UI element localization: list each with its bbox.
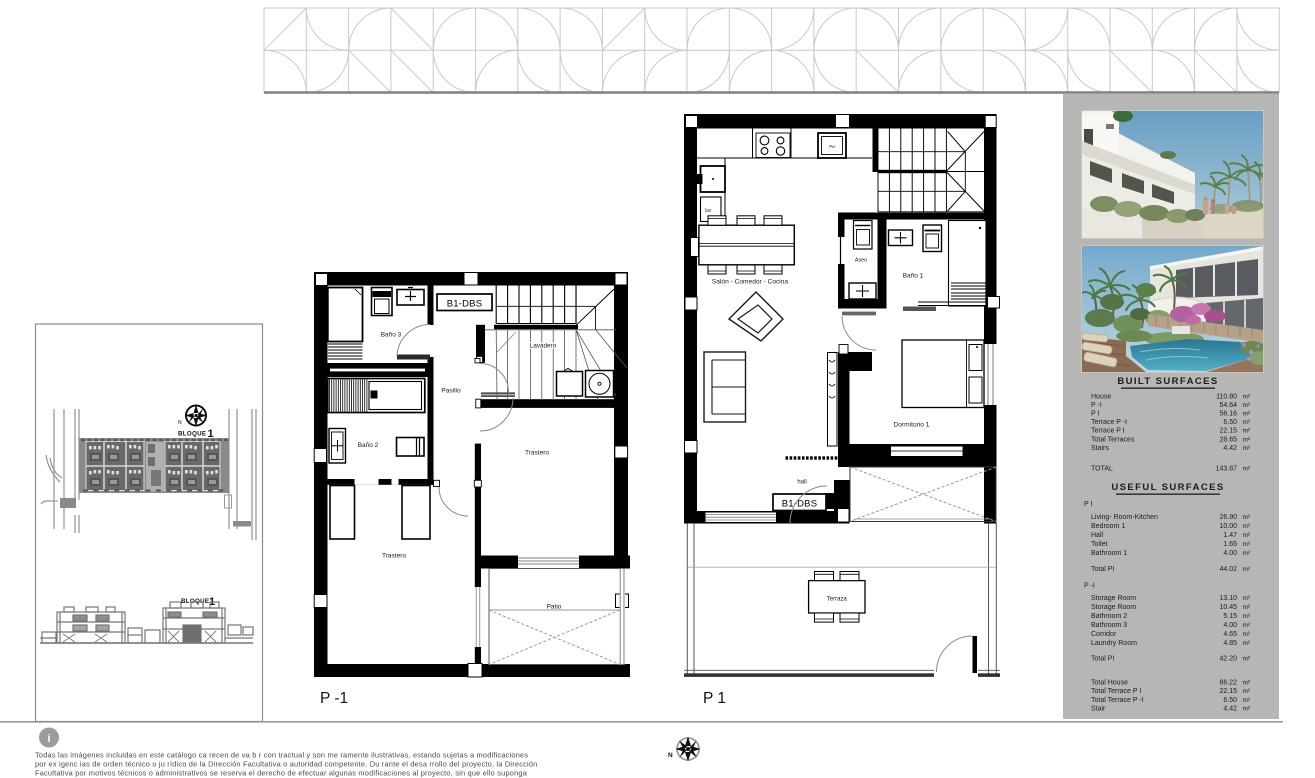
svg-text:por ex igenc ias de orden té: por ex igenc ias de orden técnico o ju r… — [35, 760, 537, 769]
svg-text:m²: m² — [1243, 613, 1251, 620]
svg-text:44.02: 44.02 — [1219, 566, 1237, 573]
svg-text:Laundry Room: Laundry Room — [1091, 640, 1137, 647]
svg-text:m²: m² — [1243, 656, 1251, 663]
svg-text:Lavadero: Lavadero — [530, 343, 557, 350]
svg-text:Stair: Stair — [1091, 706, 1106, 713]
svg-text:Dormitorio 1: Dormitorio 1 — [894, 422, 930, 429]
svg-text:Bathroom 1: Bathroom 1 — [1091, 550, 1127, 557]
svg-text:Baño 3: Baño 3 — [381, 332, 402, 339]
svg-text:5.15: 5.15 — [1223, 613, 1237, 620]
svg-text:m²: m² — [1243, 622, 1251, 629]
svg-text:〜: 〜 — [829, 144, 836, 151]
svg-text:Living- Room-Kitchen: Living- Room-Kitchen — [1091, 514, 1158, 521]
svg-text:Terrace P I: Terrace P I — [1091, 428, 1125, 435]
svg-text:Baño 2: Baño 2 — [358, 442, 379, 449]
svg-text:Terraza: Terraza — [827, 597, 848, 603]
svg-text:4.00: 4.00 — [1223, 550, 1237, 557]
svg-text:Aseo: Aseo — [855, 258, 867, 264]
svg-text:B1-DBS: B1-DBS — [782, 499, 818, 510]
svg-text:P I: P I — [1091, 411, 1099, 418]
svg-text:Salón - Comedor - Cocina: Salón - Comedor - Cocina — [712, 279, 789, 286]
svg-text:BUILT SURFACES: BUILT SURFACES — [1117, 376, 1218, 387]
svg-text:Todas las imágenes incluida: Todas las imágenes incluidas en este cat… — [35, 751, 528, 760]
svg-text:Total PI: Total PI — [1091, 656, 1114, 663]
svg-text:4.42: 4.42 — [1223, 445, 1237, 452]
svg-text:1.47: 1.47 — [1223, 532, 1237, 539]
svg-text:Corridor: Corridor — [1091, 631, 1117, 638]
svg-text:56.16: 56.16 — [1219, 411, 1237, 418]
svg-text:TOTAL: TOTAL — [1091, 466, 1113, 473]
svg-text:BLOQUE: BLOQUE — [178, 431, 206, 438]
svg-text:House: House — [1091, 394, 1111, 401]
svg-text:Facultativa por motivos técn: Facultativa por motivos técnicos o admin… — [35, 769, 528, 778]
svg-text:26.90: 26.90 — [1219, 514, 1237, 521]
svg-text:Bedroom 1: Bedroom 1 — [1091, 523, 1125, 530]
svg-text:13.10: 13.10 — [1219, 595, 1237, 602]
svg-text:N: N — [178, 420, 182, 426]
svg-text:P I: P I — [1084, 501, 1092, 508]
svg-text:m²: m² — [1243, 566, 1251, 573]
svg-text:N: N — [668, 752, 673, 759]
svg-text:54.64: 54.64 — [1219, 402, 1237, 409]
svg-text:1.65: 1.65 — [1223, 541, 1237, 548]
svg-text:42.20: 42.20 — [1219, 656, 1237, 663]
svg-text:m²: m² — [1243, 697, 1251, 704]
svg-text:143.87: 143.87 — [1216, 466, 1238, 473]
svg-text:86.22: 86.22 — [1219, 680, 1237, 687]
svg-text:m²: m² — [1243, 523, 1251, 530]
svg-text:m²: m² — [1243, 550, 1251, 557]
svg-text:10.00: 10.00 — [1219, 523, 1237, 530]
svg-text:USEFUL SURFACES: USEFUL SURFACES — [1111, 482, 1224, 493]
svg-text:m²: m² — [1243, 466, 1251, 473]
svg-text:Pasillo: Pasillo — [441, 388, 461, 395]
svg-text:m²: m² — [1243, 411, 1251, 418]
svg-text:4.85: 4.85 — [1223, 640, 1237, 647]
svg-text:P -I: P -I — [1084, 583, 1095, 590]
svg-text:110.80: 110.80 — [1216, 394, 1237, 401]
svg-text:Total PI: Total PI — [1091, 566, 1114, 573]
svg-text:6.50: 6.50 — [1223, 697, 1237, 704]
svg-text:Trastero: Trastero — [525, 450, 549, 457]
svg-text:4.00: 4.00 — [1223, 622, 1237, 629]
svg-text:Bathroom 3: Bathroom 3 — [1091, 622, 1127, 629]
svg-text:Patio: Patio — [547, 604, 562, 611]
svg-text:P -I: P -I — [1091, 402, 1102, 409]
svg-text:m²: m² — [1243, 436, 1251, 443]
svg-text:P 1: P 1 — [703, 690, 726, 707]
svg-text:Storage Room: Storage Room — [1091, 604, 1136, 611]
svg-text:Baño 1: Baño 1 — [903, 273, 924, 280]
svg-text:m²: m² — [1243, 688, 1251, 695]
svg-text:Toilet: Toilet — [1091, 541, 1107, 548]
svg-text:hall: hall — [797, 480, 806, 486]
svg-text:P -1: P -1 — [320, 690, 348, 707]
svg-text:Stairs: Stairs — [1091, 445, 1109, 452]
svg-text:m²: m² — [1243, 595, 1251, 602]
svg-text:m²: m² — [1243, 604, 1251, 611]
svg-text:m²: m² — [1243, 394, 1251, 401]
svg-text:22.15: 22.15 — [1219, 428, 1237, 435]
svg-text:10.45: 10.45 — [1219, 604, 1237, 611]
svg-text:m²: m² — [1243, 532, 1251, 539]
svg-text:28.65: 28.65 — [1219, 436, 1237, 443]
svg-text:m²: m² — [1243, 402, 1251, 409]
svg-text:m²: m² — [1243, 541, 1251, 548]
svg-text:m²: m² — [1243, 680, 1251, 687]
svg-text:Trastero: Trastero — [382, 553, 406, 560]
svg-text:Hall: Hall — [1091, 532, 1104, 539]
svg-text:4.65: 4.65 — [1223, 631, 1237, 638]
svg-text:m²: m² — [1243, 640, 1251, 647]
svg-text:Total Terrace P I: Total Terrace P I — [1091, 688, 1141, 695]
svg-text:m²: m² — [1243, 419, 1251, 426]
svg-text:Total House: Total House — [1091, 680, 1128, 687]
svg-text:Bathroom 2: Bathroom 2 — [1091, 613, 1127, 620]
svg-text:Storage Room: Storage Room — [1091, 595, 1136, 602]
svg-text:6.50: 6.50 — [1223, 419, 1237, 426]
svg-text:m²: m² — [1243, 706, 1251, 713]
svg-text:m²: m² — [1243, 428, 1251, 435]
svg-text:m²: m² — [1243, 445, 1251, 452]
svg-text:m²: m² — [1243, 631, 1251, 638]
svg-text:Terrace P -I: Terrace P -I — [1091, 419, 1127, 426]
svg-text:B1-DBS: B1-DBS — [447, 299, 483, 310]
svg-text:4.42: 4.42 — [1223, 706, 1237, 713]
svg-text:m²: m² — [1243, 514, 1251, 521]
svg-text:22.15: 22.15 — [1219, 688, 1237, 695]
svg-text:lav: lav — [705, 208, 712, 214]
svg-text:Total Terraces: Total Terraces — [1091, 436, 1135, 443]
svg-text:Total Terrace P -I: Total Terrace P -I — [1091, 697, 1144, 704]
svg-text:i: i — [47, 733, 50, 745]
